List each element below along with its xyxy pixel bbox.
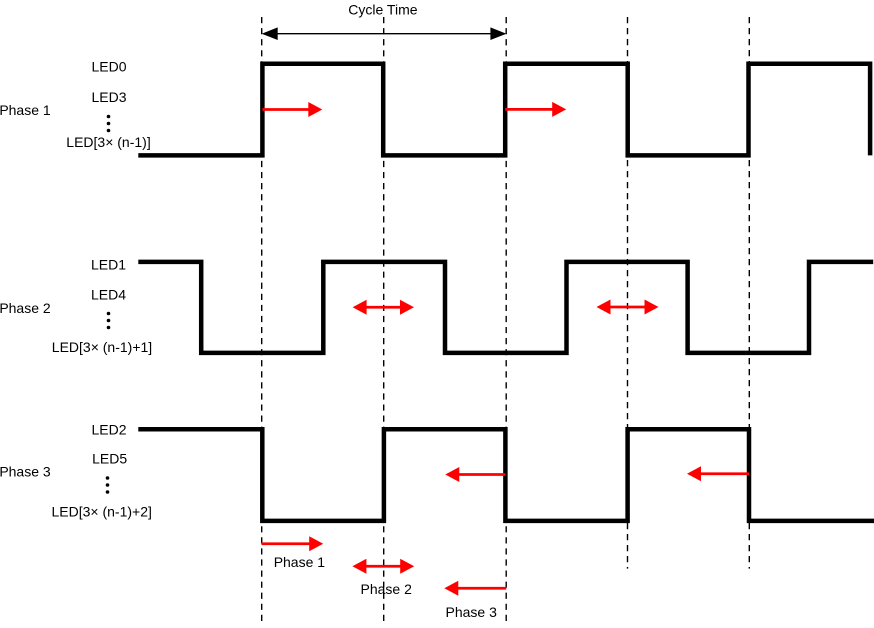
svg-text:Phase 3: Phase 3 <box>446 604 498 620</box>
svg-text:Phase 2: Phase 2 <box>0 300 51 316</box>
svg-text:LED5: LED5 <box>92 451 127 467</box>
svg-text:LED1: LED1 <box>91 257 126 273</box>
svg-text:Phase 1: Phase 1 <box>0 102 51 118</box>
svg-text:Phase 1: Phase 1 <box>274 554 326 570</box>
svg-text:Phase 3: Phase 3 <box>0 464 51 480</box>
svg-text:Phase 2: Phase 2 <box>361 581 413 597</box>
svg-text:LED[3× (n-1)]: LED[3× (n-1)] <box>66 134 150 150</box>
svg-text:LED3: LED3 <box>91 89 126 105</box>
svg-text:LED4: LED4 <box>91 287 126 303</box>
svg-text:Cycle Time: Cycle Time <box>348 2 417 18</box>
svg-text:LED2: LED2 <box>91 422 126 438</box>
svg-text:LED0: LED0 <box>91 59 126 75</box>
svg-text:LED[3× (n-1)+1]: LED[3× (n-1)+1] <box>52 339 152 355</box>
svg-text:LED[3× (n-1)+2]: LED[3× (n-1)+2] <box>52 503 152 519</box>
